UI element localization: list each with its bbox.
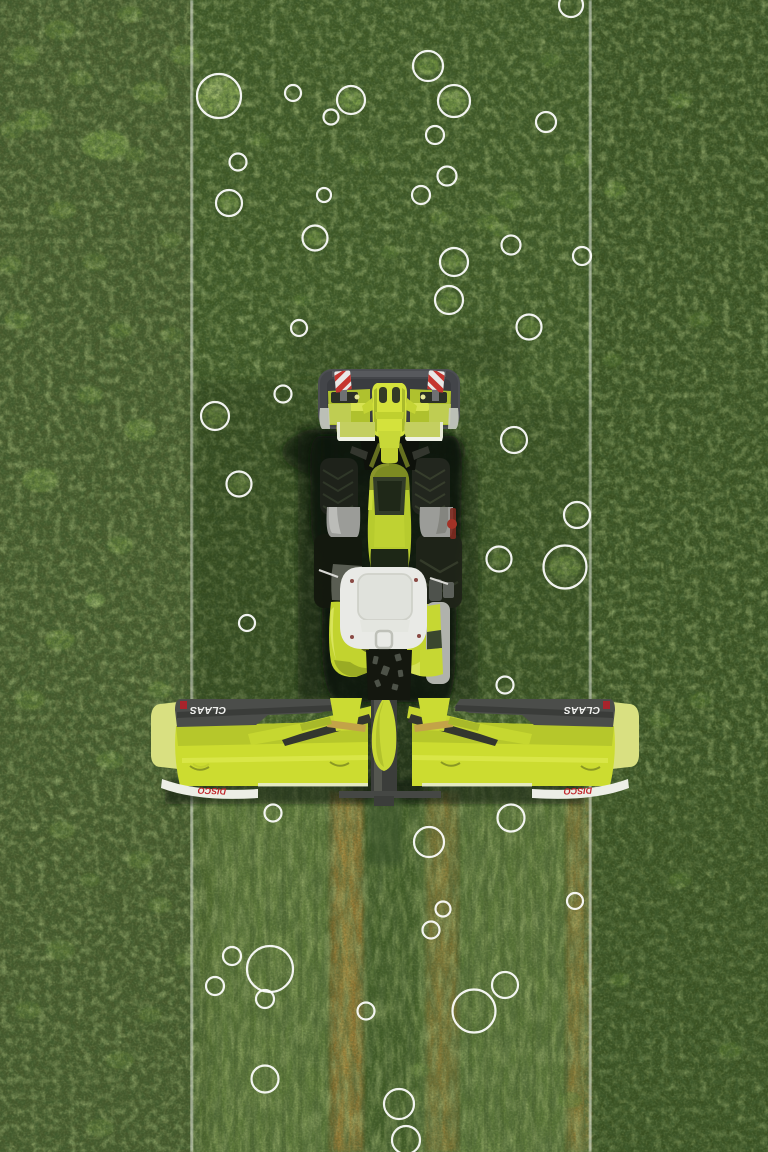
svg-text:DISCO: DISCO bbox=[564, 786, 593, 797]
svg-text:CLAAS: CLAAS bbox=[564, 704, 600, 716]
svg-text:CLAAS: CLAAS bbox=[190, 704, 226, 716]
svg-text:DISCO: DISCO bbox=[198, 786, 227, 797]
